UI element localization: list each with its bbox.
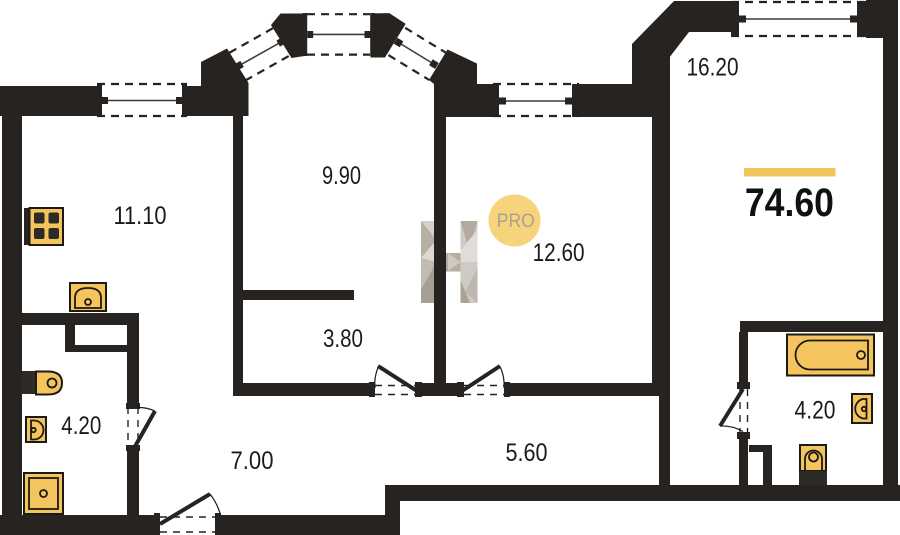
svg-text:11.10: 11.10	[114, 202, 167, 230]
svg-text:4.20: 4.20	[61, 412, 101, 440]
svg-text:PRO: PRO	[497, 210, 535, 232]
svg-text:16.20: 16.20	[687, 54, 739, 82]
svg-text:74.60: 74.60	[745, 181, 834, 225]
svg-text:5.60: 5.60	[506, 439, 548, 467]
svg-text:4.20: 4.20	[795, 397, 836, 425]
svg-text:12.60: 12.60	[533, 239, 585, 267]
svg-text:9.90: 9.90	[322, 162, 361, 190]
svg-text:7.00: 7.00	[231, 447, 274, 475]
svg-text:3.80: 3.80	[323, 325, 363, 353]
